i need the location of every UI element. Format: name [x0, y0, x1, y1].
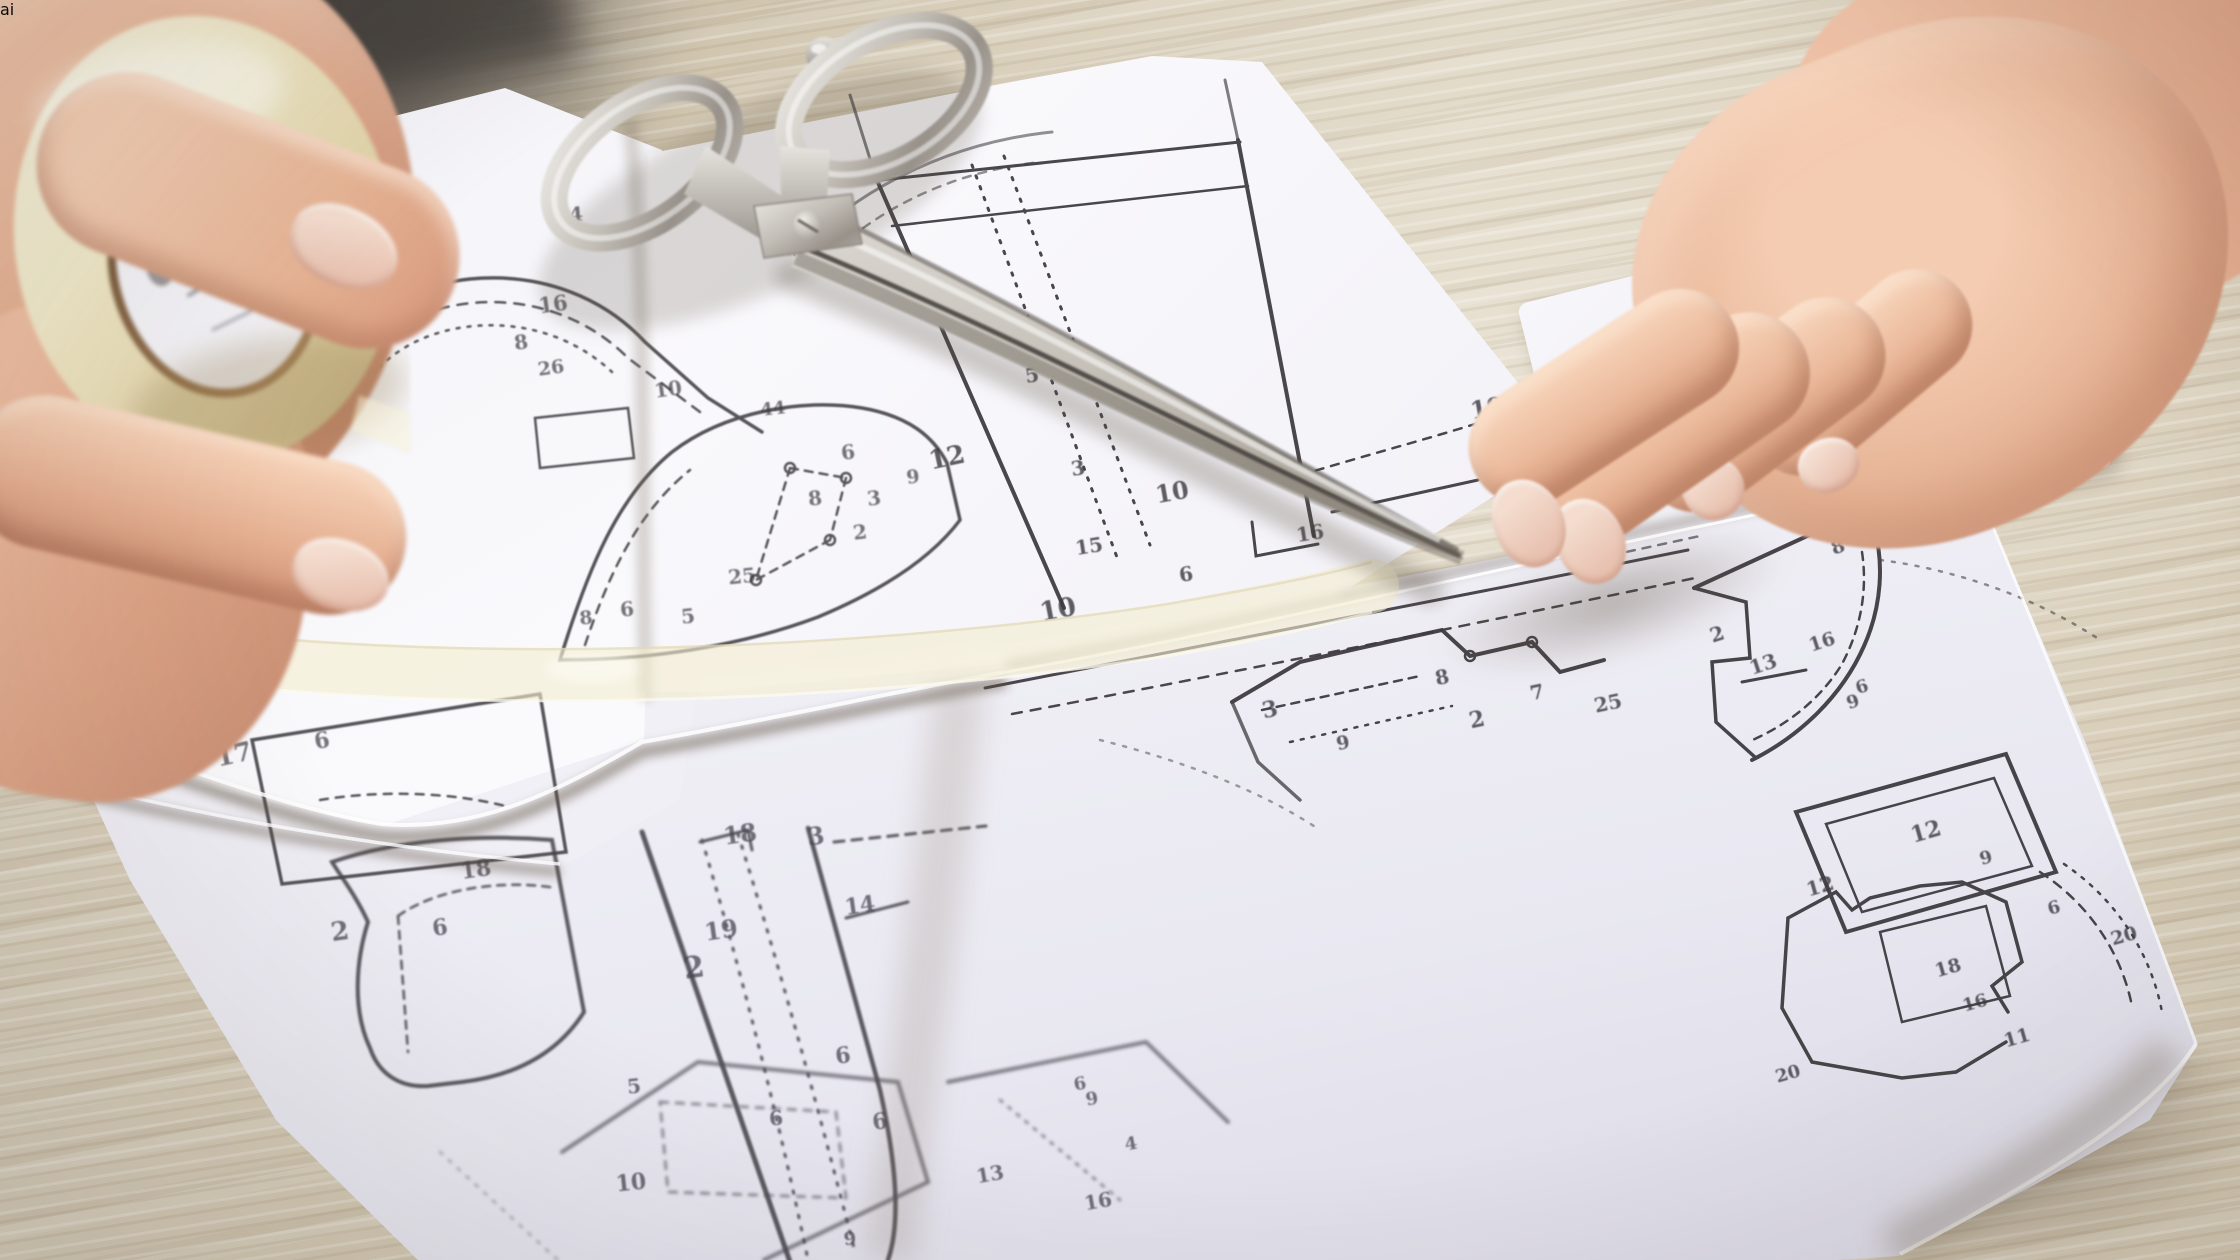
ai-logo: ai: [0, 0, 14, 19]
photo-stage: 164168261044698322565812176 531210815166…: [0, 0, 2240, 1260]
ai-logo-text: ai: [0, 0, 14, 19]
